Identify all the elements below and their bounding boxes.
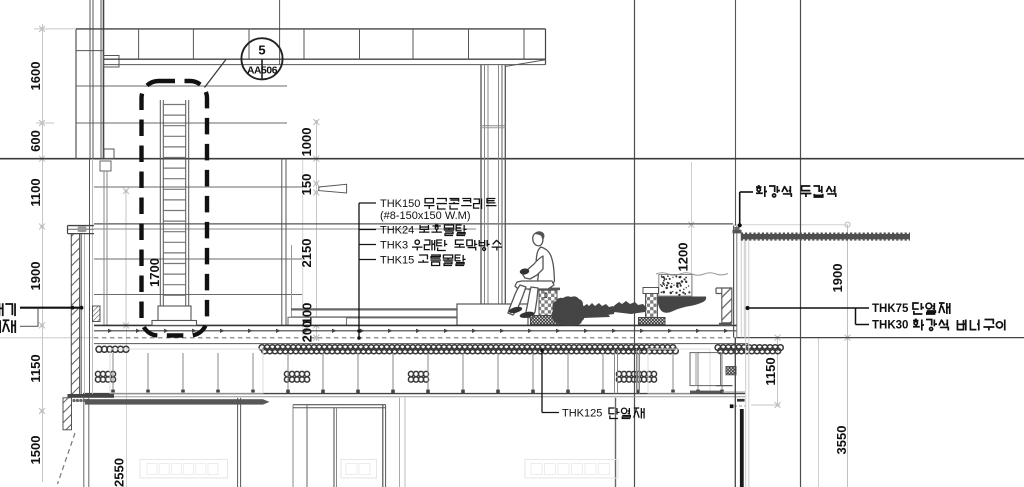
svg-text:1900: 1900 xyxy=(830,264,845,293)
svg-text:THK15: THK15 xyxy=(380,255,414,267)
svg-text:1000: 1000 xyxy=(299,128,314,157)
svg-text:THK30: THK30 xyxy=(872,320,908,332)
svg-text:1700: 1700 xyxy=(147,258,162,287)
svg-text:600: 600 xyxy=(28,130,43,152)
svg-text:1150: 1150 xyxy=(763,357,778,385)
svg-text:1500: 1500 xyxy=(28,436,43,465)
svg-text:THK125: THK125 xyxy=(562,408,602,420)
svg-text:1100: 1100 xyxy=(28,178,43,206)
svg-text:(#8-150x150 W.M): (#8-150x150 W.M) xyxy=(380,210,470,222)
svg-text:150: 150 xyxy=(299,174,314,196)
svg-text:2150: 2150 xyxy=(299,239,314,268)
svg-text:AA506: AA506 xyxy=(247,66,278,77)
svg-text:THK24: THK24 xyxy=(380,225,414,237)
svg-text:1200: 1200 xyxy=(676,243,691,272)
svg-text:1900: 1900 xyxy=(28,262,43,291)
svg-text:200: 200 xyxy=(300,321,315,343)
svg-text:THK75: THK75 xyxy=(872,303,909,315)
svg-text:THK3: THK3 xyxy=(380,240,408,252)
svg-text:1150: 1150 xyxy=(28,354,43,382)
svg-text:THK150: THK150 xyxy=(380,198,420,210)
svg-text:2550: 2550 xyxy=(112,458,127,487)
svg-text:5: 5 xyxy=(258,43,265,58)
svg-text:3550: 3550 xyxy=(834,426,849,455)
svg-text:1600: 1600 xyxy=(28,62,43,91)
